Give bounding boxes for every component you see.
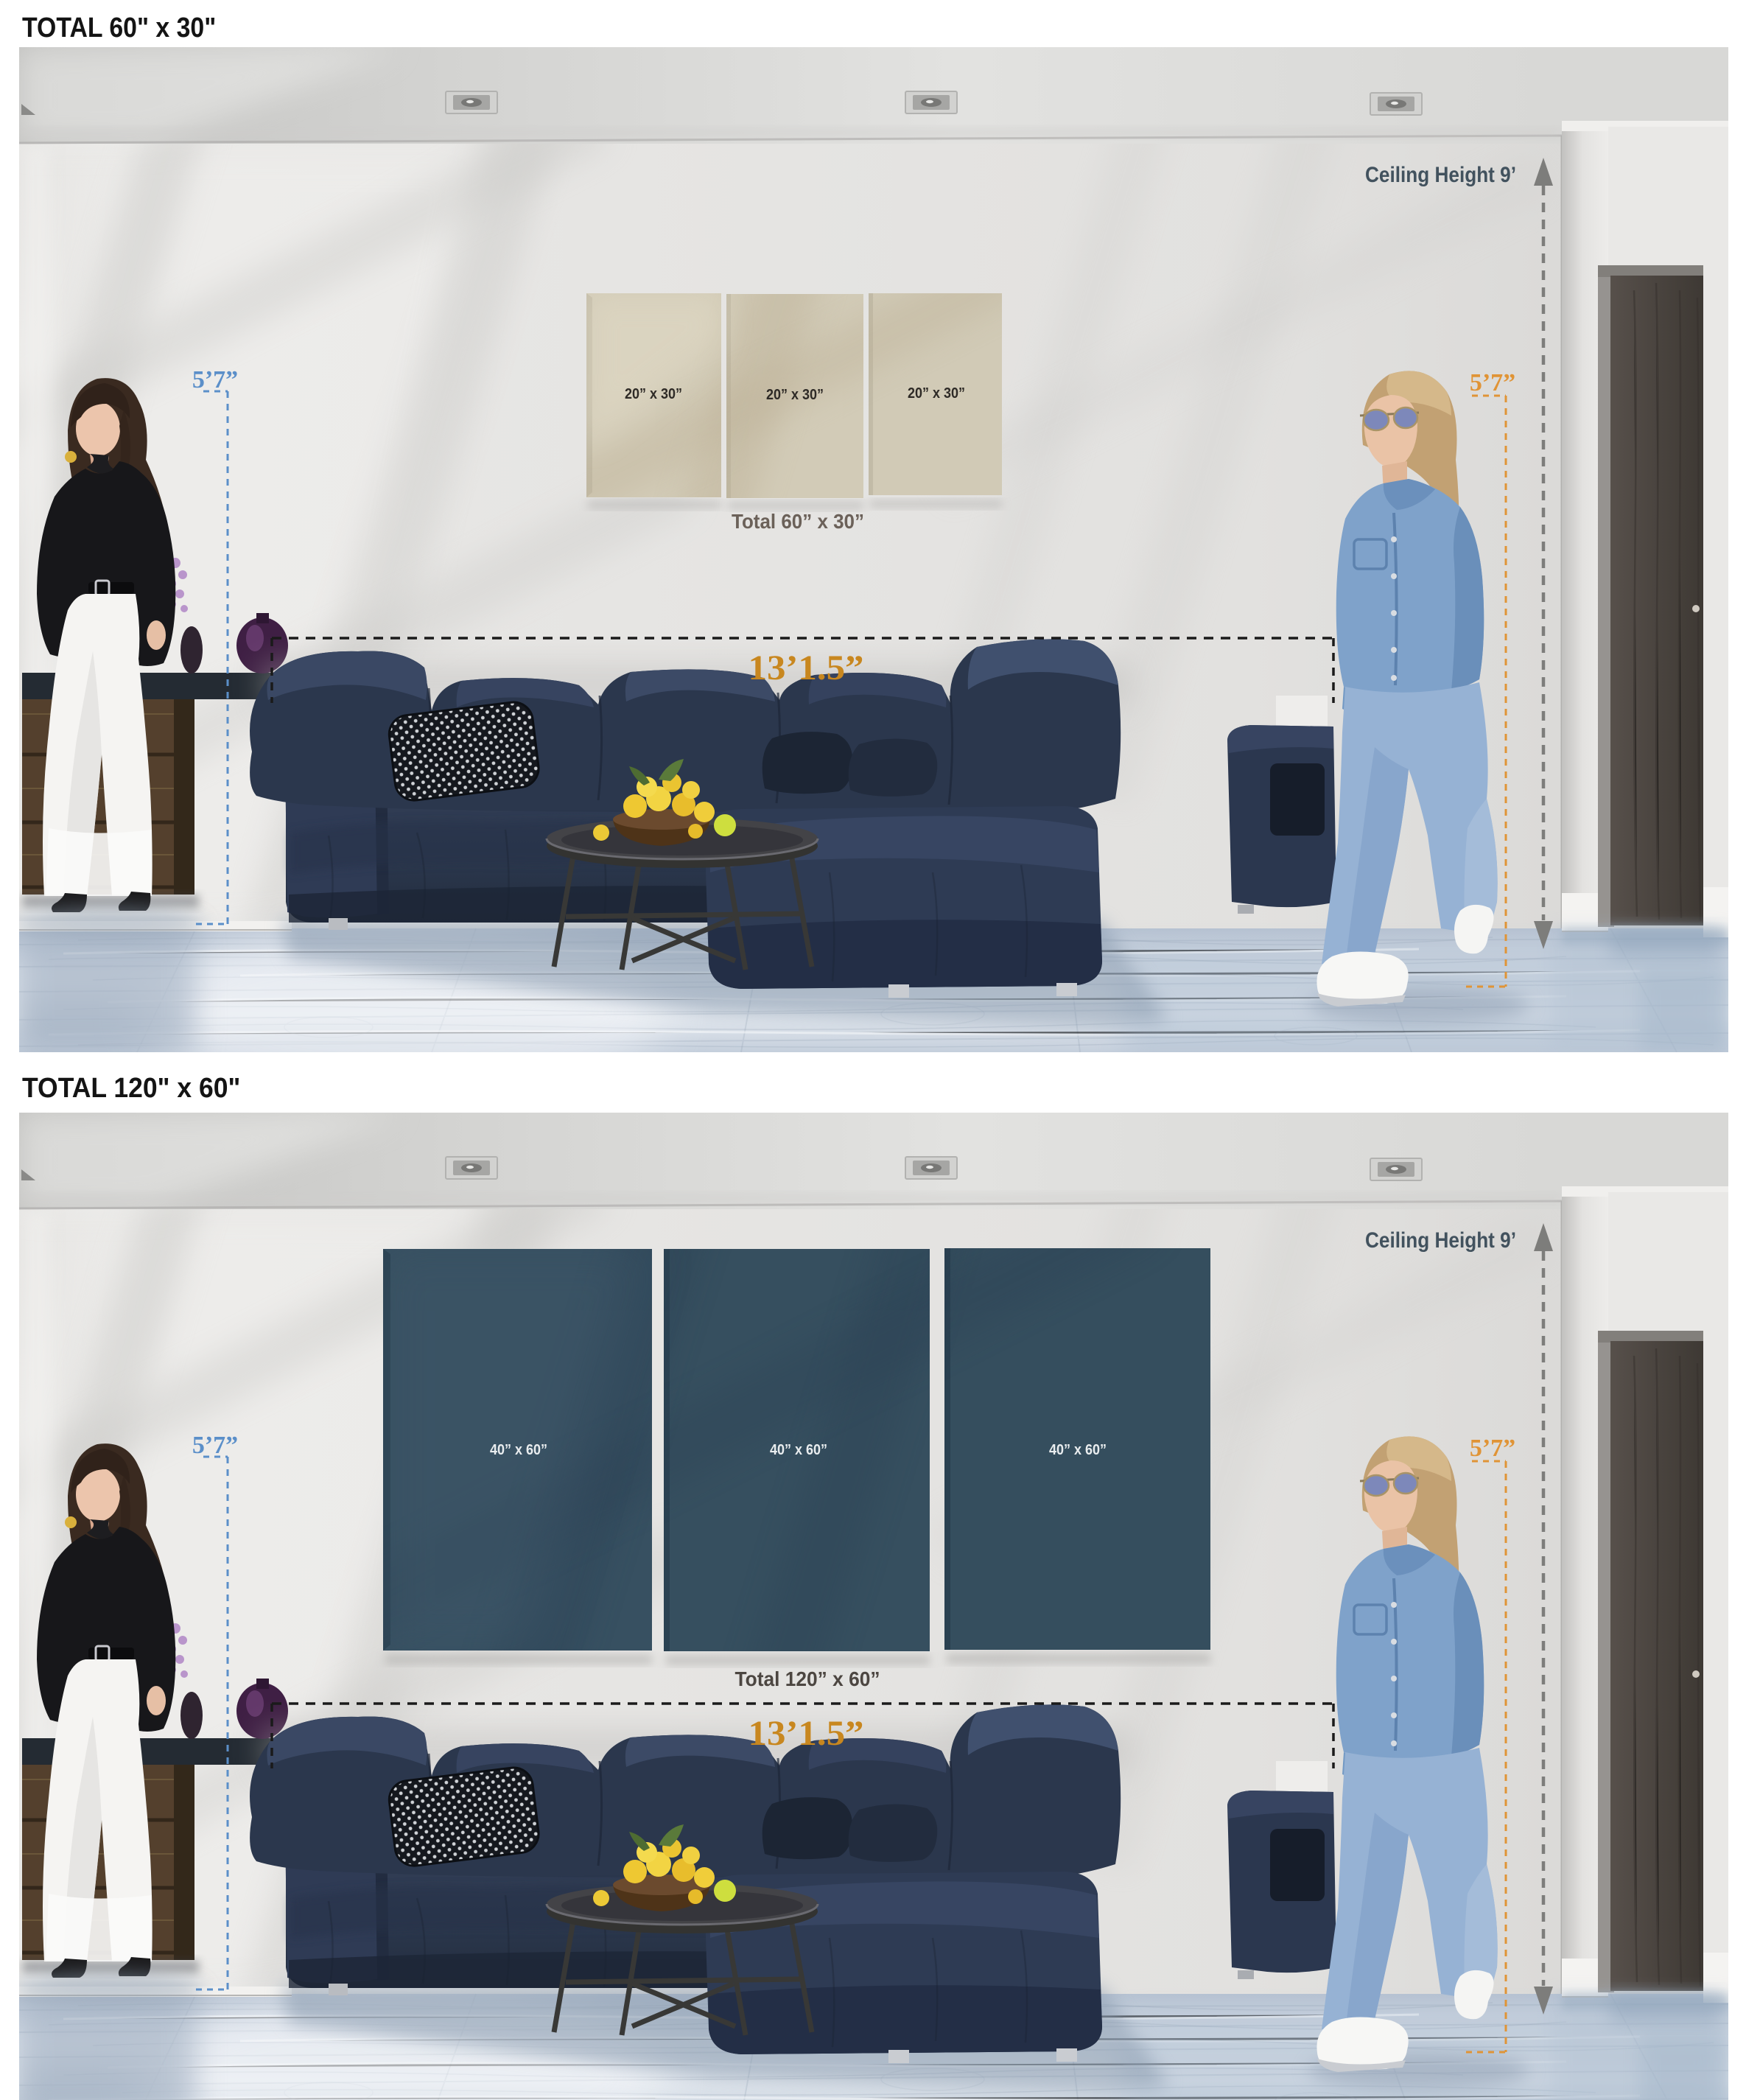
svg-text:20” x 30”: 20” x 30”	[908, 385, 965, 402]
svg-text:Total 60” x 30”: Total 60” x 30”	[732, 510, 864, 533]
svg-text:40” x 60”: 40” x 60”	[490, 1442, 547, 1458]
svg-text:20” x 30”: 20” x 30”	[766, 387, 824, 403]
svg-text:20” x 30”: 20” x 30”	[625, 386, 682, 402]
svg-text:40” x 60”: 40” x 60”	[770, 1442, 827, 1458]
svg-text:40” x 60”: 40” x 60”	[1049, 1442, 1107, 1458]
svg-text:Total 120” x 60”: Total 120” x 60”	[735, 1667, 880, 1690]
